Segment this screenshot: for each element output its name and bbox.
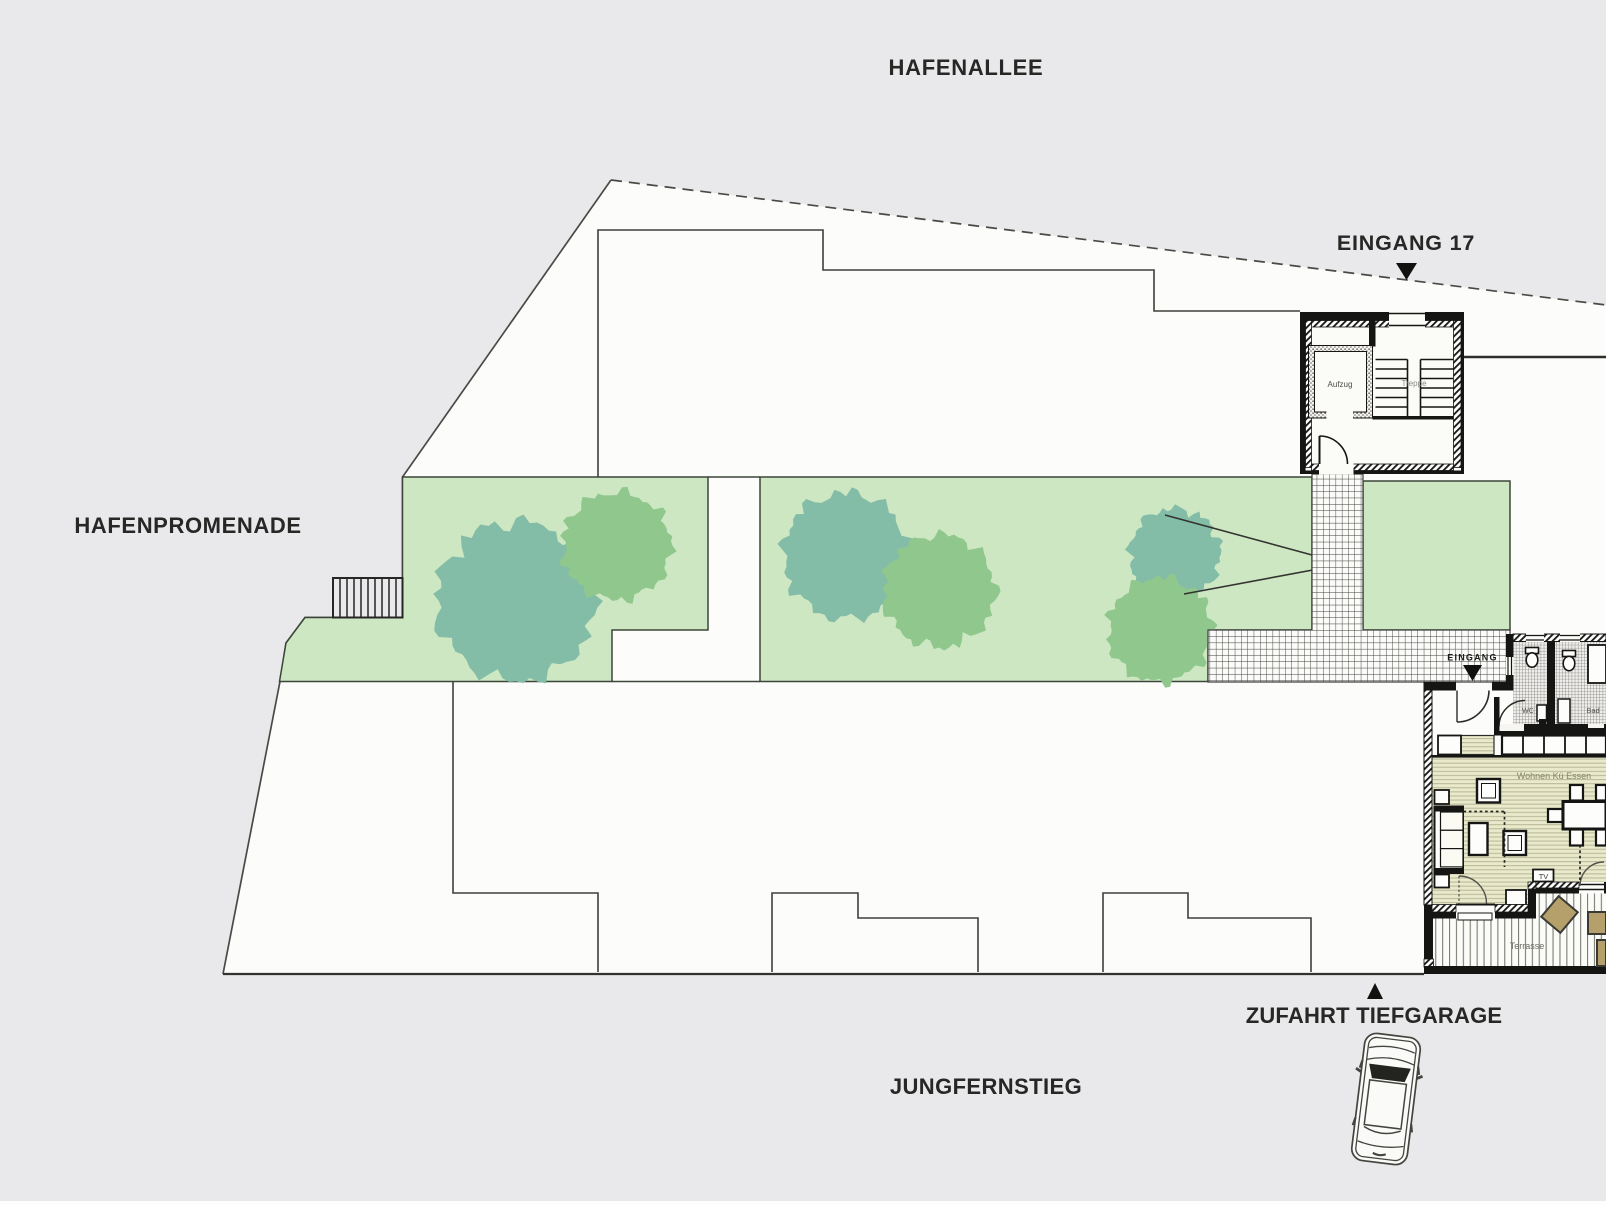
svg-text:WC: WC [1522,708,1534,715]
svg-text:TV: TV [1539,872,1549,881]
svg-text:Treppe: Treppe [1401,379,1427,388]
svg-text:Bad: Bad [1586,706,1599,715]
svg-text:Aufzug: Aufzug [1328,380,1353,389]
svg-text:EINGANG 17: EINGANG 17 [1337,231,1475,255]
svg-text:EINGANG: EINGANG [1447,653,1497,663]
svg-text:HAFENALLEE: HAFENALLEE [889,55,1044,80]
svg-text:Terrasse: Terrasse [1510,941,1545,951]
svg-text:HAFENPROMENADE: HAFENPROMENADE [74,513,301,538]
svg-text:Wohnen Kü Essen: Wohnen Kü Essen [1517,771,1591,781]
svg-text:ZUFAHRT TIEFGARAGE: ZUFAHRT TIEFGARAGE [1246,1003,1503,1028]
svg-text:JUNGFERNSTIEG: JUNGFERNSTIEG [890,1074,1082,1099]
